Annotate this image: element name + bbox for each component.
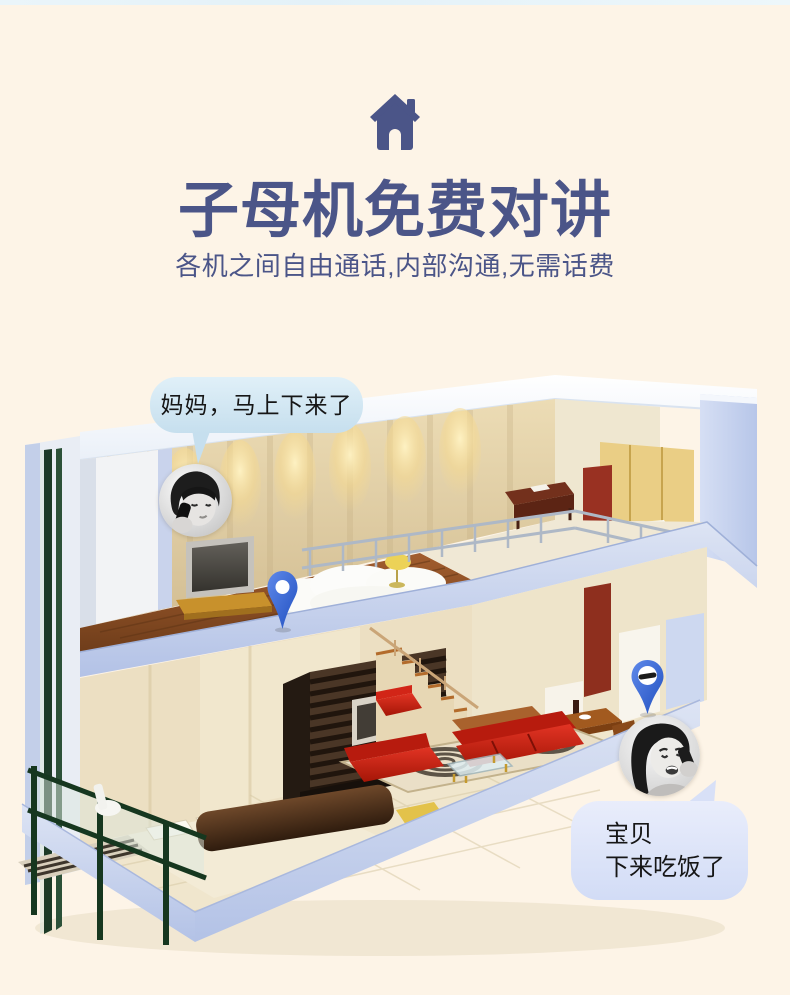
page-title: 子母机免费对讲 [0, 160, 790, 249]
speech-bubble-baby-line2: 下来吃饭了 [605, 851, 748, 884]
speech-bubble-baby: 宝贝 下来吃饭了 [571, 801, 748, 900]
speech-bubble-mom: 妈妈，马上下来了 [150, 377, 363, 433]
house-cutaway-illustration [0, 370, 790, 995]
interior-wall-wing [80, 448, 172, 628]
promo-page: 子母机免费对讲 各机之间自由通话,内部沟通,无需话费 [0, 0, 790, 995]
speech-bubble-baby-line1: 宝贝 [605, 818, 748, 851]
location-pin-upstairs [266, 570, 299, 634]
speech-bubble-mom-text: 妈妈，马上下来了 [161, 392, 353, 418]
page-subtitle: 各机之间自由通话,内部沟通,无需话费 [0, 246, 790, 283]
caller-photo-child [159, 464, 232, 537]
ground-shadow [35, 900, 725, 956]
top-strip [0, 0, 790, 5]
location-pin-downstairs-phone [630, 659, 665, 719]
duplex-cutaway-scene: 妈妈，马上下来了 [0, 370, 790, 995]
caller-photo-mom [619, 715, 700, 796]
house-icon [367, 91, 423, 153]
red-door [584, 583, 611, 697]
